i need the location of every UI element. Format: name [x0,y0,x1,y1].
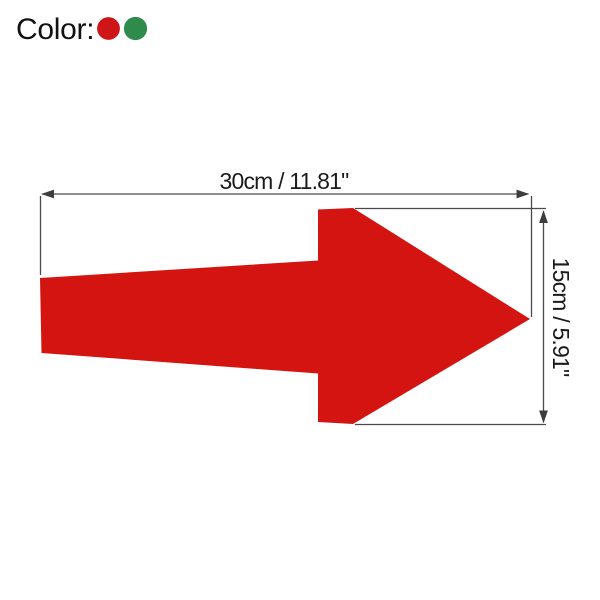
color-legend-label: Color: [16,13,94,46]
product-image: Color: 30cm / 11.81" 15cm / 5.91" [0,0,600,600]
color-legend: Color: [16,13,147,46]
height-dimension-label: 15cm / 5.91" [548,258,574,377]
width-dimension-label: 30cm / 11.81" [219,168,349,194]
product-diagram: Color: 30cm / 11.81" 15cm / 5.91" [0,0,600,600]
color-swatch-red [97,17,120,40]
arrow-decal [40,208,530,424]
color-swatch-green [124,17,147,40]
